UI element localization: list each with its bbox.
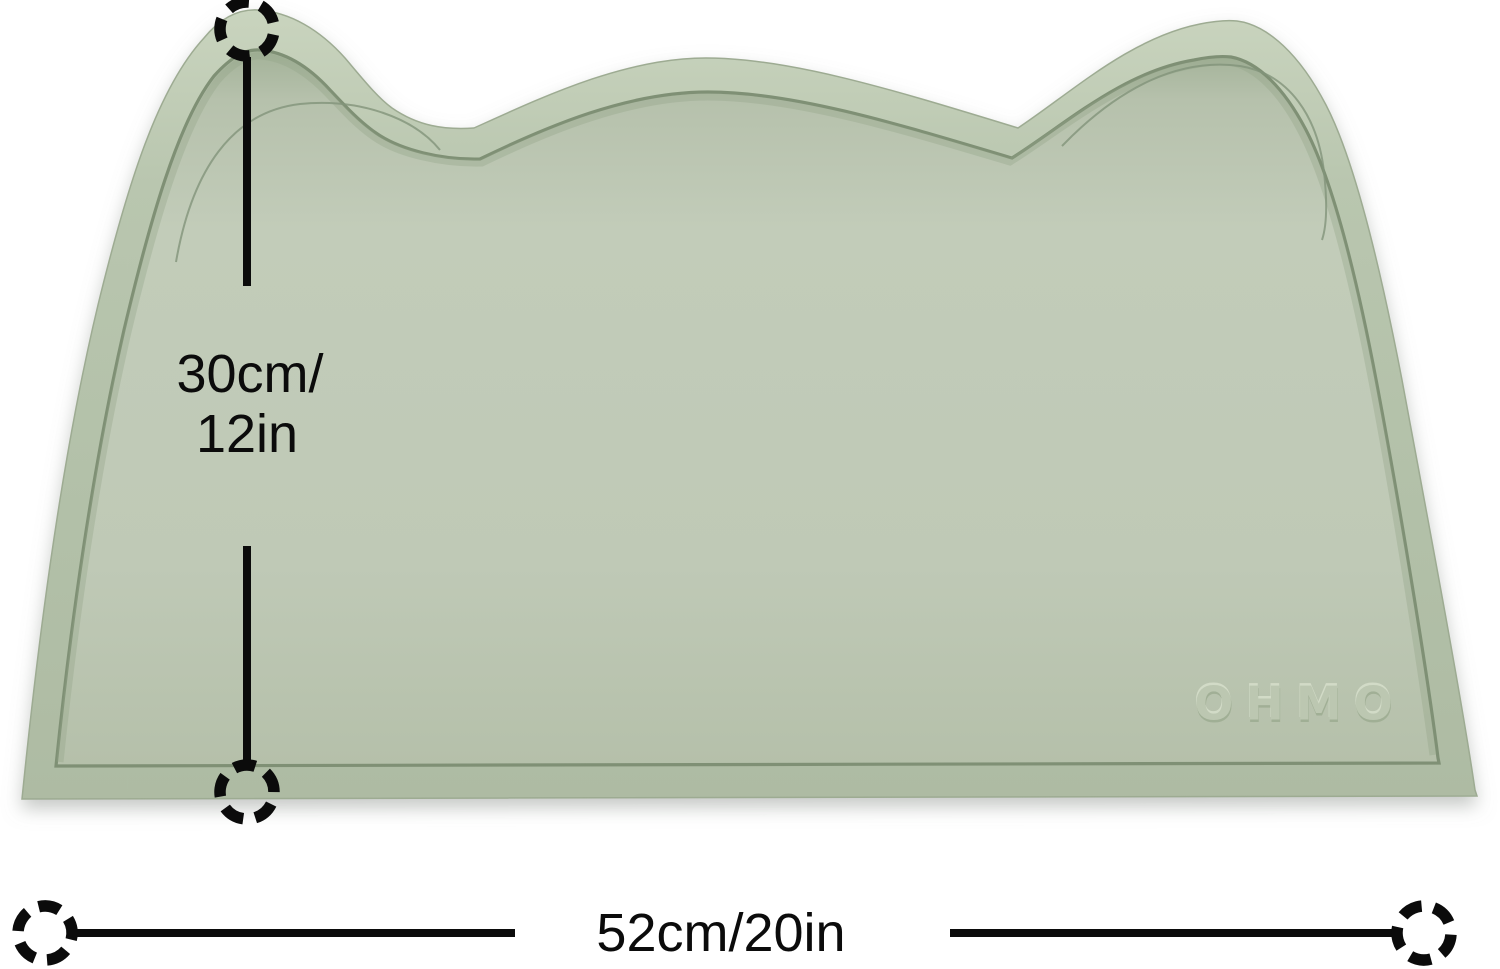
- dashed-circle-icon: [1391, 900, 1457, 966]
- dashed-circle-icon: [7, 895, 83, 969]
- horizontal-dimension-label: 52cm/20in: [596, 903, 845, 963]
- vertical-dimension-label-line2: 12in: [196, 404, 298, 464]
- vertical-dimension-label-line1: 30cm/: [176, 344, 323, 404]
- horizontal-dimension-annotation: 52cm/20in: [7, 895, 1457, 969]
- brand-logo: OHMO OHMO OHMO: [1194, 674, 1405, 733]
- diagram-canvas: OHMO OHMO OHMO 30cm/ 12in 52cm/20in: [0, 0, 1500, 969]
- product-dimension-diagram: OHMO OHMO OHMO 30cm/ 12in 52cm/20in: [0, 0, 1500, 969]
- brand-logo-face: OHMO: [1194, 677, 1404, 731]
